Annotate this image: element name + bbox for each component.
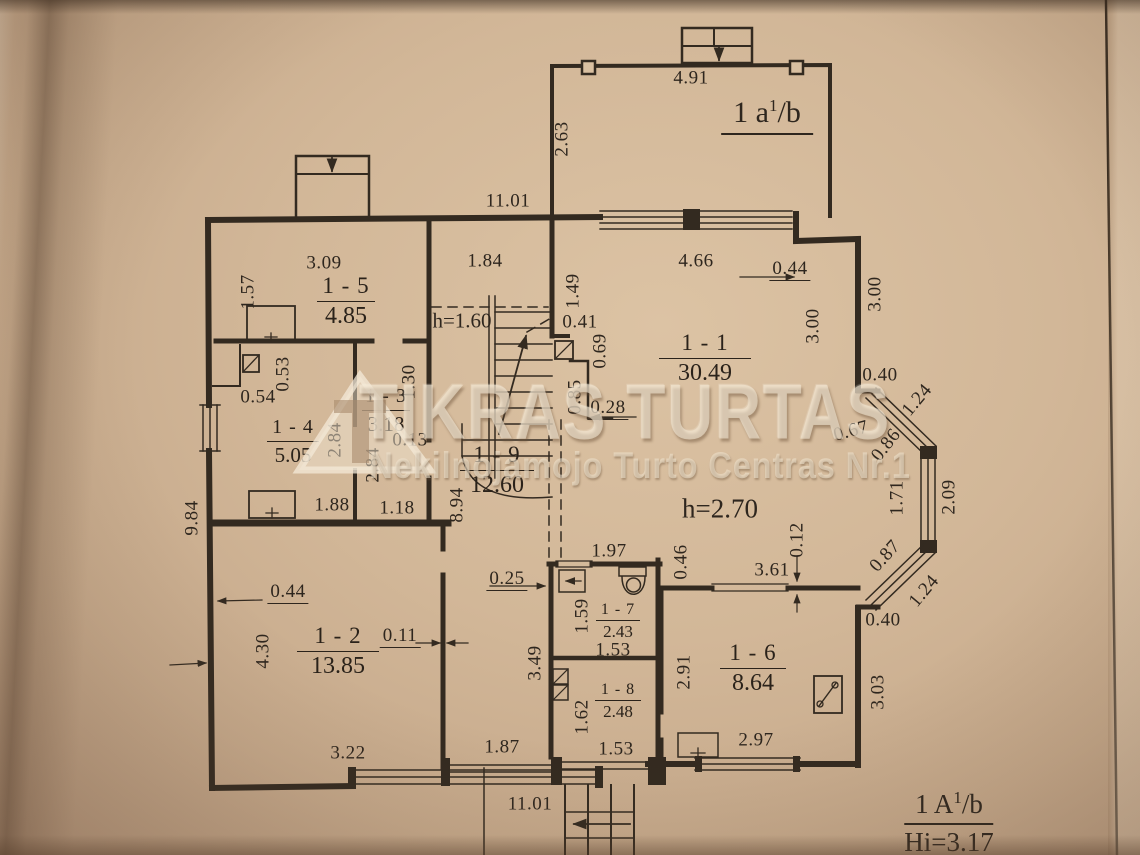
room-number: 1 - 7	[596, 601, 640, 618]
room-label-divider	[460, 470, 534, 471]
dimension-label: 4.91	[673, 69, 708, 88]
dimension-label: 2.97	[738, 731, 773, 750]
room-number: 1 - 2	[297, 624, 379, 649]
room-area: 3.18	[362, 413, 410, 436]
room-label-divider	[267, 441, 319, 442]
dimension-label: 0.46	[672, 544, 691, 579]
dimension-label: 4.66	[678, 252, 713, 271]
room-number: 1 - 4	[267, 417, 319, 439]
dimension-label: 0.44	[267, 582, 308, 604]
dimension-label: 9.84	[183, 500, 202, 535]
dimension-label: 3.49	[526, 645, 545, 680]
height-note: h=1.60	[432, 311, 491, 332]
dimension-label: 2.63	[553, 121, 572, 156]
plan-id-top-text: 1 a	[733, 96, 769, 129]
furniture-room4	[249, 491, 295, 518]
window-left	[200, 405, 220, 451]
room-label: 1 - 45.05	[267, 417, 319, 466]
room-label: 1 - 33.18	[362, 386, 410, 435]
dimension-label: 3.09	[306, 254, 341, 273]
room-label: 1 - 68.64	[720, 641, 786, 697]
sheet-frame-line	[1106, 0, 1117, 855]
room-label-divider	[297, 651, 379, 652]
dimension-label: 0.11	[380, 626, 421, 648]
window-bottom-right	[695, 756, 800, 772]
room-number: 1 - 8	[595, 681, 641, 698]
sink-icon	[559, 570, 585, 592]
dimension-label: 4.30	[254, 633, 273, 668]
door-bottom-center	[551, 757, 666, 785]
dimension-label: 0.41	[562, 313, 597, 332]
room-label: 1 - 72.43	[596, 601, 640, 642]
dimension-label: 1.18	[379, 499, 414, 518]
room-area: 5.05	[267, 444, 319, 467]
room-label: 1 - 54.85	[317, 274, 375, 330]
door-entrance	[441, 758, 551, 786]
dimension-label: 1.88	[314, 496, 349, 515]
plan-id-bottom: 1 A1/b Hi=3.17	[904, 788, 993, 855]
dimension-label: 0.25	[486, 569, 527, 591]
dimension-label: 3.00	[804, 308, 823, 343]
room-area: 4.85	[317, 304, 375, 330]
dimension-label: 2.09	[940, 479, 959, 514]
room-number: 1 - 9	[460, 443, 534, 468]
room-area: 12.60	[460, 473, 534, 499]
building-height-label: Hi=3.17	[904, 825, 993, 855]
room-area: 30.49	[659, 361, 751, 387]
room-label-divider	[595, 700, 641, 701]
room-area: 2.48	[595, 703, 641, 721]
dimension-label: 3.22	[330, 744, 365, 763]
dimension-label: 1.53	[595, 641, 630, 660]
dimension-label: 3.61	[754, 561, 789, 580]
room-area: 2.43	[596, 623, 640, 641]
electric-meter-icon	[814, 676, 842, 713]
plan-id-bottom-text: 1 A	[915, 789, 953, 819]
radiator-icon	[678, 733, 718, 758]
room-label: 1 - 82.48	[595, 681, 641, 722]
window-top	[600, 209, 792, 230]
dimension-label: 1.87	[484, 738, 519, 757]
dimension-label: 0.53	[274, 356, 293, 391]
plan-id-top: 1 a1/b	[721, 96, 813, 135]
dimension-label: 11.01	[508, 795, 553, 814]
dimension-label: 1.62	[573, 699, 592, 734]
dimension-label: 1.57	[239, 274, 258, 309]
room-label-divider	[659, 358, 751, 359]
room-label: 1 - 130.49	[659, 331, 751, 387]
dimension-label: 1.49	[564, 273, 583, 308]
dimension-label: 0.40	[865, 611, 900, 630]
dimension-label: 1.59	[573, 598, 592, 633]
room-number: 1 - 3	[362, 386, 410, 408]
dimension-label: 0.44	[769, 259, 810, 281]
dimension-label: 0.40	[862, 366, 897, 385]
room-label-divider	[317, 301, 375, 302]
dimension-label: 1.53	[598, 740, 633, 759]
room-label-divider	[720, 668, 786, 669]
dimension-label: 0.69	[591, 333, 610, 368]
room-number: 1 - 6	[720, 641, 786, 666]
room-number: 1 - 1	[659, 331, 751, 356]
furniture-room5	[247, 306, 295, 341]
room-area: 8.64	[720, 671, 786, 697]
room-label: 1 - 213.85	[297, 624, 379, 680]
dimension-label: 2.84	[326, 422, 345, 457]
height-note: h=2.70	[682, 496, 758, 523]
dimension-label: 1.71	[888, 480, 907, 515]
dimension-label: 0.28	[587, 398, 628, 420]
toilet-icon	[619, 567, 646, 594]
dimension-label: 2.91	[675, 654, 694, 689]
dimension-label: 3.03	[869, 674, 888, 709]
room-label: 1 - 912.60	[460, 443, 534, 499]
chimney-icon-top	[682, 28, 752, 63]
chimney-icon-left	[296, 156, 369, 218]
dimension-label: 1.97	[591, 542, 626, 561]
room-label-divider	[596, 620, 640, 621]
dimension-label: 0.54	[240, 388, 275, 407]
dimension-label: 0.85	[566, 379, 585, 414]
dimension-label: 3.00	[866, 276, 885, 311]
floor-plan-photo: 4.912.6311.013.091.571.844.660.443.003.0…	[0, 0, 1140, 855]
outer-walls	[208, 214, 858, 788]
dimension-label: 1.84	[467, 252, 502, 271]
room-number: 1 - 5	[317, 274, 375, 299]
dimension-label: 11.01	[486, 192, 531, 211]
dimension-label: 2.84	[364, 447, 383, 482]
room-area: 13.85	[297, 654, 379, 680]
room-label-divider	[362, 410, 410, 411]
dimension-label: 0.12	[788, 522, 807, 557]
